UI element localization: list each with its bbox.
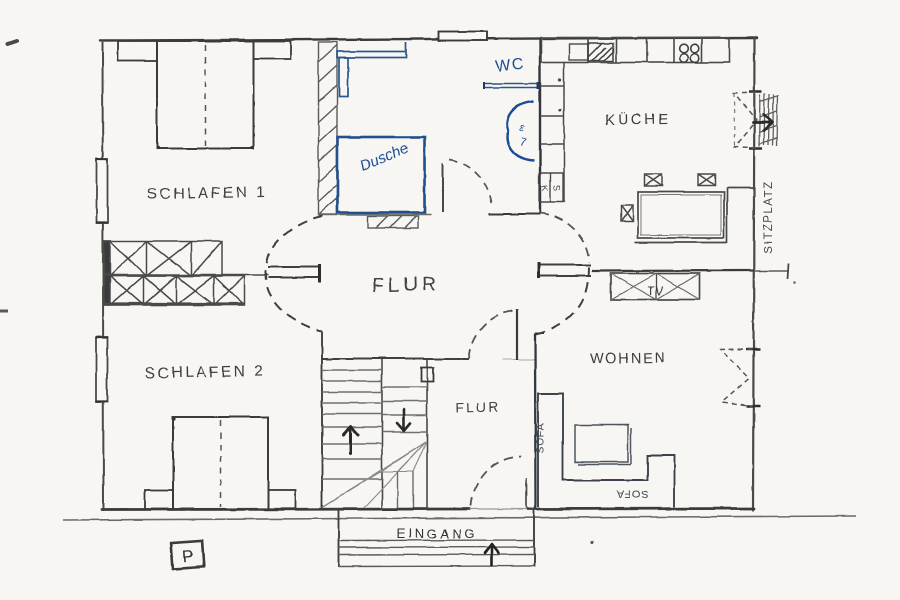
svg-text:FLUR: FLUR	[455, 400, 501, 416]
svg-text:P: P	[181, 547, 194, 567]
svg-text:WOHNEN: WOHNEN	[589, 350, 666, 367]
svg-text:TV: TV	[648, 286, 665, 298]
svg-text:SCHLAFEN 1: SCHLAFEN 1	[147, 184, 268, 203]
svg-text:SOFA: SOFA	[536, 423, 547, 454]
svg-text:WC: WC	[495, 55, 526, 75]
svg-text:KÜCHE: KÜCHE	[605, 109, 671, 128]
svg-text:FLUR: FLUR	[372, 273, 441, 297]
svg-text:K: K	[540, 185, 550, 192]
svg-text:EINGANG: EINGANG	[397, 526, 478, 541]
svg-text:SCHLAFEN 2: SCHLAFEN 2	[145, 363, 266, 382]
svg-text:SITZPLATZ: SITZPLATZ	[763, 180, 775, 253]
svg-text:S: S	[552, 185, 562, 192]
svg-text:SOFA: SOFA	[615, 488, 648, 500]
